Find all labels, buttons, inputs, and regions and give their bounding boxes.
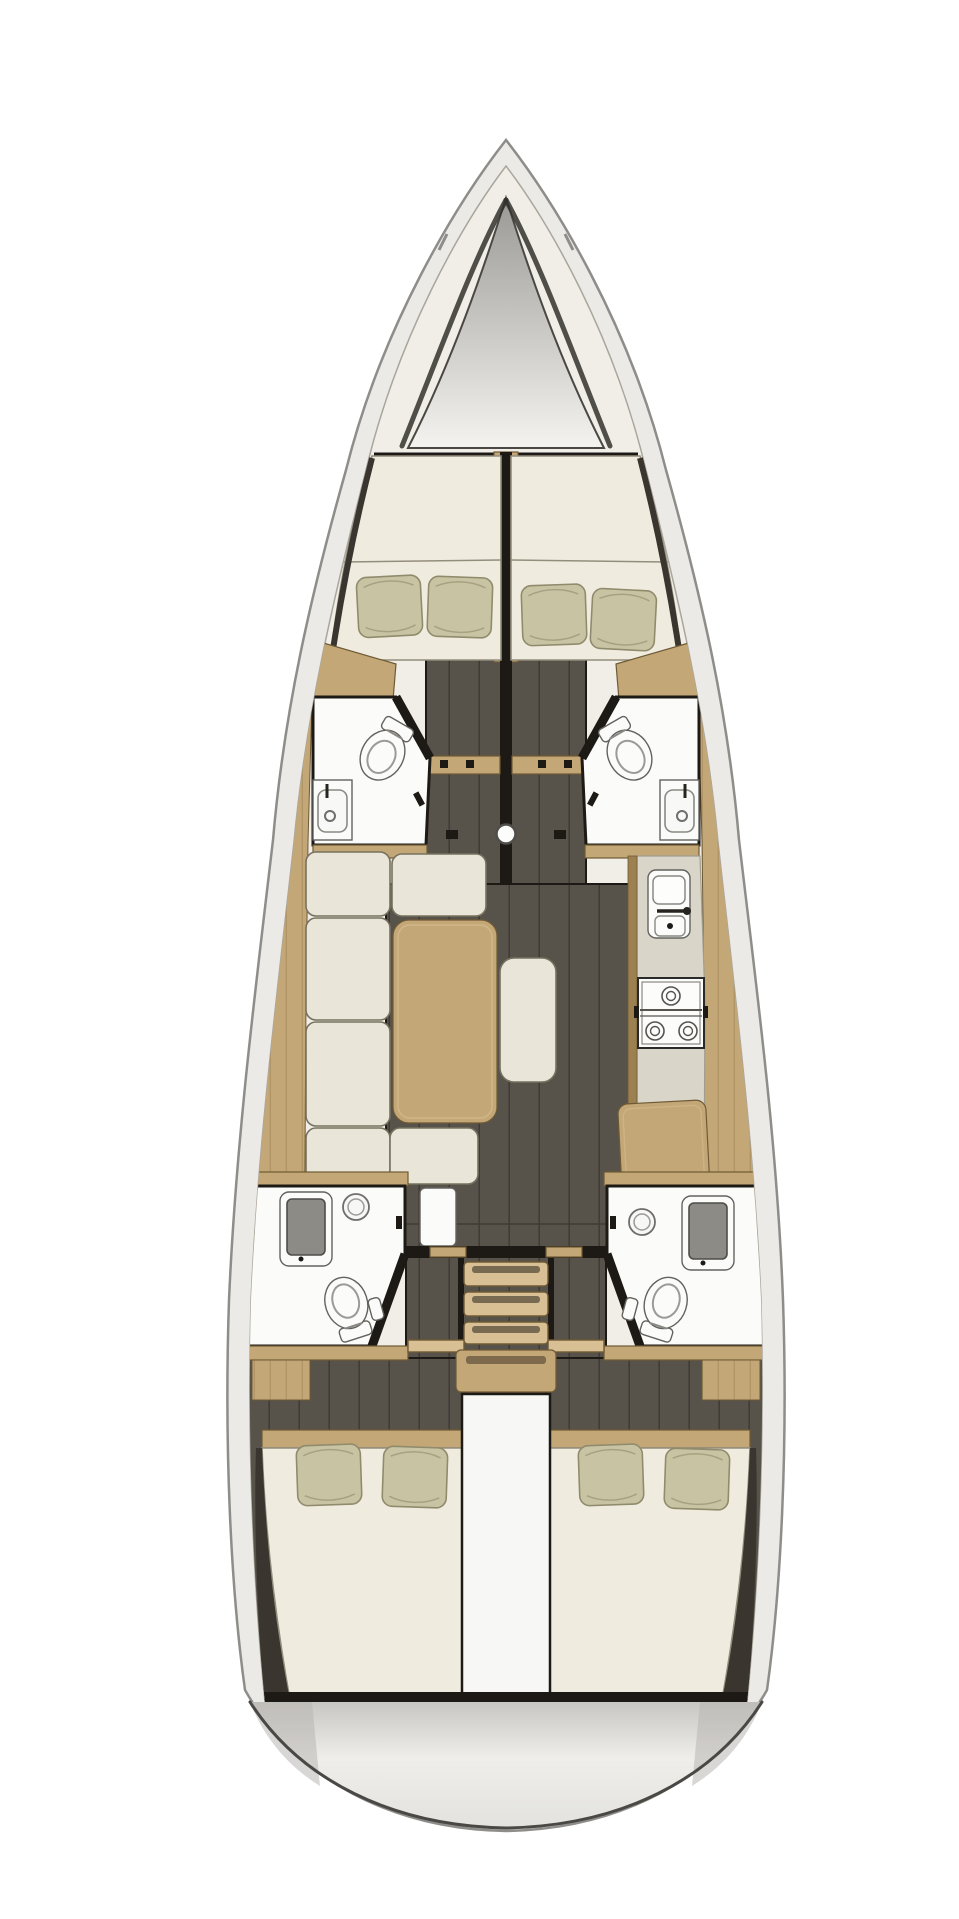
engine-compartment [462,1394,550,1698]
pillow [382,1446,448,1508]
aft-head-port [240,1172,408,1346]
stair-tread [464,1292,548,1316]
cabin-threshold [604,1346,772,1360]
settee-back-cushion [306,918,390,1020]
pillow [590,588,657,651]
stair-platform [456,1350,556,1392]
shower-pan [689,1203,727,1259]
forward-head-starboard [582,697,699,845]
settee-seat-forward [392,854,486,916]
berth-step-starboard [512,756,584,774]
companionway-hatch [420,1188,456,1246]
bulkhead-trim [430,1247,466,1257]
door-handle [396,1216,402,1229]
forward-head-port [313,697,430,845]
side-ledge [548,1340,604,1352]
deck-fitting [446,830,458,839]
step-knob [466,760,474,768]
headboard-shelf [550,1430,750,1448]
settee-back-cushion [306,1022,390,1126]
stair-tread [464,1322,548,1344]
centre-bench [500,958,556,1082]
head-threshold [240,1172,408,1186]
aft-head-starboard [604,1172,772,1346]
transom [250,1702,762,1828]
stern-beam [246,1692,766,1702]
stove-gimbal [634,1006,639,1018]
interior [240,198,772,1702]
step-knob [564,760,572,768]
pillow [427,576,493,638]
shower-drain [701,1261,706,1266]
step-knob [440,760,448,768]
pillow [521,584,587,646]
pillow [296,1444,362,1506]
aft-cabin-starboard [546,1346,772,1700]
round-sink [629,1209,655,1235]
galley-drain [667,923,673,929]
galley-sink-basin [653,876,685,904]
head-threshold [604,1172,772,1186]
stove-gimbal [703,1006,708,1018]
aft-cabin-port [240,1346,466,1700]
side-ledge [408,1340,464,1352]
swim-platform [250,1702,762,1828]
step-knob [538,760,546,768]
berth-step-port [428,756,500,774]
door-handle [610,1216,616,1229]
pillow [664,1448,730,1510]
side-locker [252,1360,310,1400]
cabin-threshold [240,1346,408,1360]
side-locker [702,1360,760,1400]
deck-fitting [554,830,566,839]
settee-back-cushion [306,852,390,916]
mast-post [497,825,516,844]
galley-faucet-knob [683,907,691,915]
pillow [578,1444,644,1506]
shower-pan [287,1199,325,1255]
headboard-shelf [262,1430,462,1448]
bulkhead-trim [546,1247,582,1257]
round-sink [343,1194,369,1220]
saloon-table [393,920,497,1123]
shower-drain [299,1257,304,1262]
pillow [356,575,423,638]
yacht-floor-plan [0,0,959,1919]
stair-tread [464,1262,548,1286]
